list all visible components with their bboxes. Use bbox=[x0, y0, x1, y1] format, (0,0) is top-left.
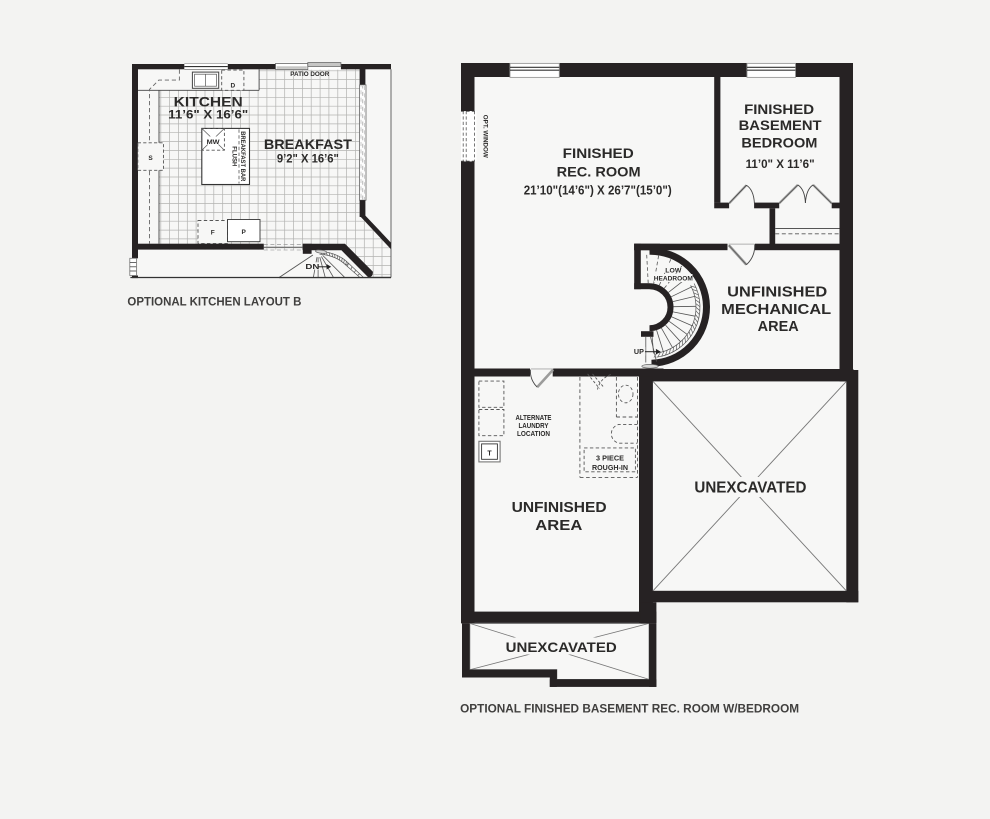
svg-text:P: P bbox=[242, 229, 247, 236]
svg-text:OPT. WINDOW: OPT. WINDOW bbox=[481, 115, 488, 158]
svg-text:BEDROOM: BEDROOM bbox=[741, 136, 817, 151]
svg-text:BREAKFAST: BREAKFAST bbox=[264, 136, 352, 152]
svg-text:DN: DN bbox=[305, 264, 319, 271]
svg-text:KITCHEN: KITCHEN bbox=[174, 94, 243, 110]
svg-text:11’6" X 16’6": 11’6" X 16’6" bbox=[168, 110, 248, 122]
svg-text:REC. ROOM: REC. ROOM bbox=[557, 163, 641, 179]
svg-text:AREA: AREA bbox=[758, 319, 799, 335]
svg-text:UP: UP bbox=[634, 349, 644, 356]
svg-text:F: F bbox=[211, 229, 215, 236]
svg-text:FINISHED: FINISHED bbox=[563, 145, 634, 161]
svg-text:MECHANICAL: MECHANICAL bbox=[721, 302, 831, 318]
svg-text:LAUNDRY: LAUNDRY bbox=[519, 423, 549, 430]
svg-text:LOCATION: LOCATION bbox=[517, 431, 550, 438]
svg-text:FLUSH: FLUSH bbox=[231, 146, 238, 167]
svg-text:9’2" X 16’6": 9’2" X 16’6" bbox=[277, 154, 339, 166]
svg-text:21’10"(14’6") X 26’7"(15’0"): 21’10"(14’6") X 26’7"(15’0") bbox=[524, 184, 672, 198]
svg-text:T: T bbox=[487, 450, 492, 457]
svg-text:D: D bbox=[230, 82, 235, 89]
svg-text:OPTIONAL FINISHED BASEMENT REC: OPTIONAL FINISHED BASEMENT REC. ROOM W/B… bbox=[460, 704, 799, 716]
svg-text:AREA: AREA bbox=[535, 518, 582, 534]
svg-text:ROUGH-IN: ROUGH-IN bbox=[592, 465, 628, 472]
svg-text:HEADROOM: HEADROOM bbox=[654, 276, 693, 283]
svg-text:ALTERNATE: ALTERNATE bbox=[516, 415, 552, 422]
svg-text:UNEXCAVATED: UNEXCAVATED bbox=[506, 639, 617, 655]
svg-text:LOW: LOW bbox=[665, 268, 682, 275]
svg-text:OPTIONAL KITCHEN LAYOUT B: OPTIONAL KITCHEN LAYOUT B bbox=[127, 294, 301, 308]
svg-text:UNEXCAVATED: UNEXCAVATED bbox=[694, 480, 806, 497]
svg-text:BASEMENT: BASEMENT bbox=[739, 118, 823, 133]
svg-text:PATIO DOOR: PATIO DOOR bbox=[290, 71, 329, 78]
svg-text:BREAKFAST BAR: BREAKFAST BAR bbox=[239, 131, 246, 182]
svg-text:FINISHED: FINISHED bbox=[744, 102, 814, 117]
svg-text:3 PIECE: 3 PIECE bbox=[596, 455, 624, 462]
svg-text:S: S bbox=[148, 155, 153, 162]
svg-text:11’0" X 11’6": 11’0" X 11’6" bbox=[746, 157, 815, 171]
svg-text:UNFINISHED: UNFINISHED bbox=[727, 284, 827, 300]
svg-text:MW: MW bbox=[207, 139, 221, 146]
svg-text:UNFINISHED: UNFINISHED bbox=[512, 500, 607, 516]
